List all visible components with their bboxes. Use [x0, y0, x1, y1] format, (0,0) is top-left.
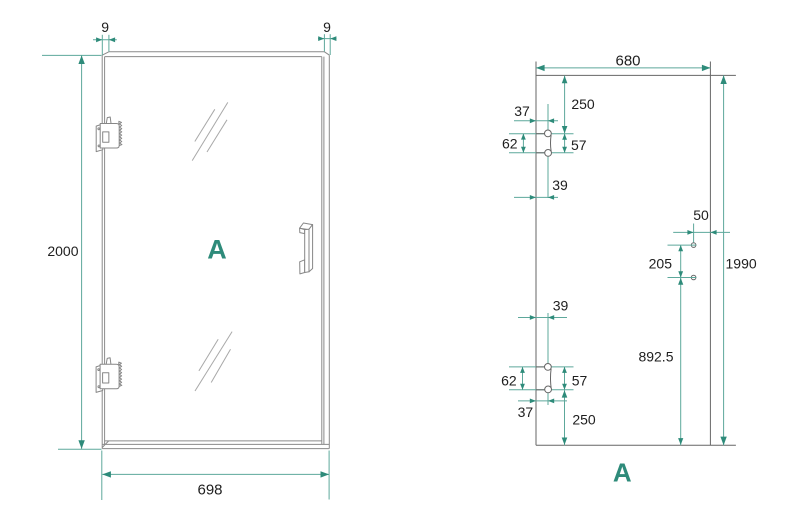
svg-text:205: 205 — [649, 256, 673, 272]
svg-text:37: 37 — [518, 404, 534, 420]
svg-text:A: A — [613, 458, 632, 488]
svg-text:1990: 1990 — [726, 256, 757, 272]
svg-text:A: A — [207, 235, 227, 265]
svg-text:62: 62 — [502, 136, 518, 152]
svg-text:9: 9 — [101, 19, 109, 35]
svg-text:39: 39 — [552, 177, 568, 193]
svg-text:892.5: 892.5 — [638, 349, 673, 365]
svg-text:39: 39 — [553, 298, 569, 314]
svg-text:62: 62 — [501, 373, 517, 389]
svg-text:250: 250 — [572, 412, 596, 428]
svg-text:57: 57 — [571, 137, 587, 153]
svg-text:37: 37 — [514, 103, 530, 119]
svg-text:50: 50 — [693, 207, 709, 223]
svg-text:57: 57 — [572, 373, 588, 389]
svg-text:9: 9 — [323, 19, 331, 35]
svg-text:698: 698 — [197, 482, 222, 499]
svg-text:250: 250 — [571, 96, 595, 112]
svg-text:680: 680 — [615, 53, 640, 70]
svg-text:2000: 2000 — [47, 243, 78, 259]
